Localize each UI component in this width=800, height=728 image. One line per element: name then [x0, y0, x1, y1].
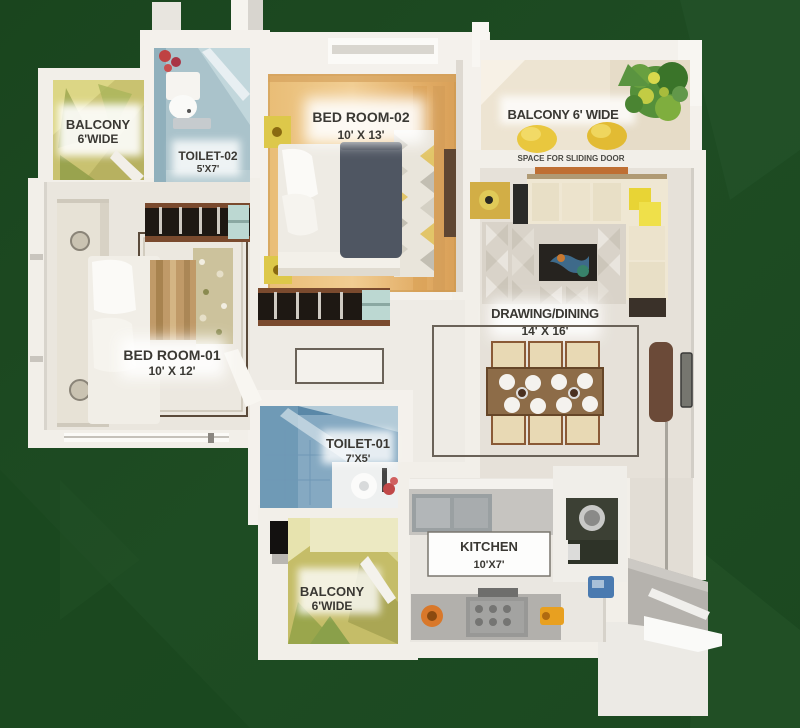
svg-text:7'X5': 7'X5'	[346, 453, 371, 465]
svg-text:BALCONY: BALCONY	[300, 584, 365, 599]
svg-text:BED ROOM-01: BED ROOM-01	[123, 347, 220, 363]
svg-text:SPACE FOR SLIDING DOOR: SPACE FOR SLIDING DOOR	[518, 154, 625, 163]
svg-text:TOILET-02: TOILET-02	[178, 149, 237, 163]
svg-text:10' X 12': 10' X 12'	[148, 364, 195, 378]
svg-text:10'X7': 10'X7'	[474, 559, 505, 571]
svg-text:BED ROOM-02: BED ROOM-02	[312, 109, 409, 125]
svg-text:BALCONY 6' WIDE: BALCONY 6' WIDE	[507, 107, 619, 122]
svg-text:5'X7': 5'X7'	[197, 164, 220, 175]
svg-text:TOILET-01: TOILET-01	[326, 436, 390, 451]
svg-text:6'WIDE: 6'WIDE	[78, 132, 119, 146]
svg-text:BALCONY: BALCONY	[66, 117, 131, 132]
svg-text:10' X 13': 10' X 13'	[337, 128, 384, 142]
svg-text:DRAWING/DINING: DRAWING/DINING	[491, 306, 599, 321]
svg-text:KITCHEN: KITCHEN	[460, 539, 518, 554]
svg-text:6'WIDE: 6'WIDE	[312, 599, 353, 613]
